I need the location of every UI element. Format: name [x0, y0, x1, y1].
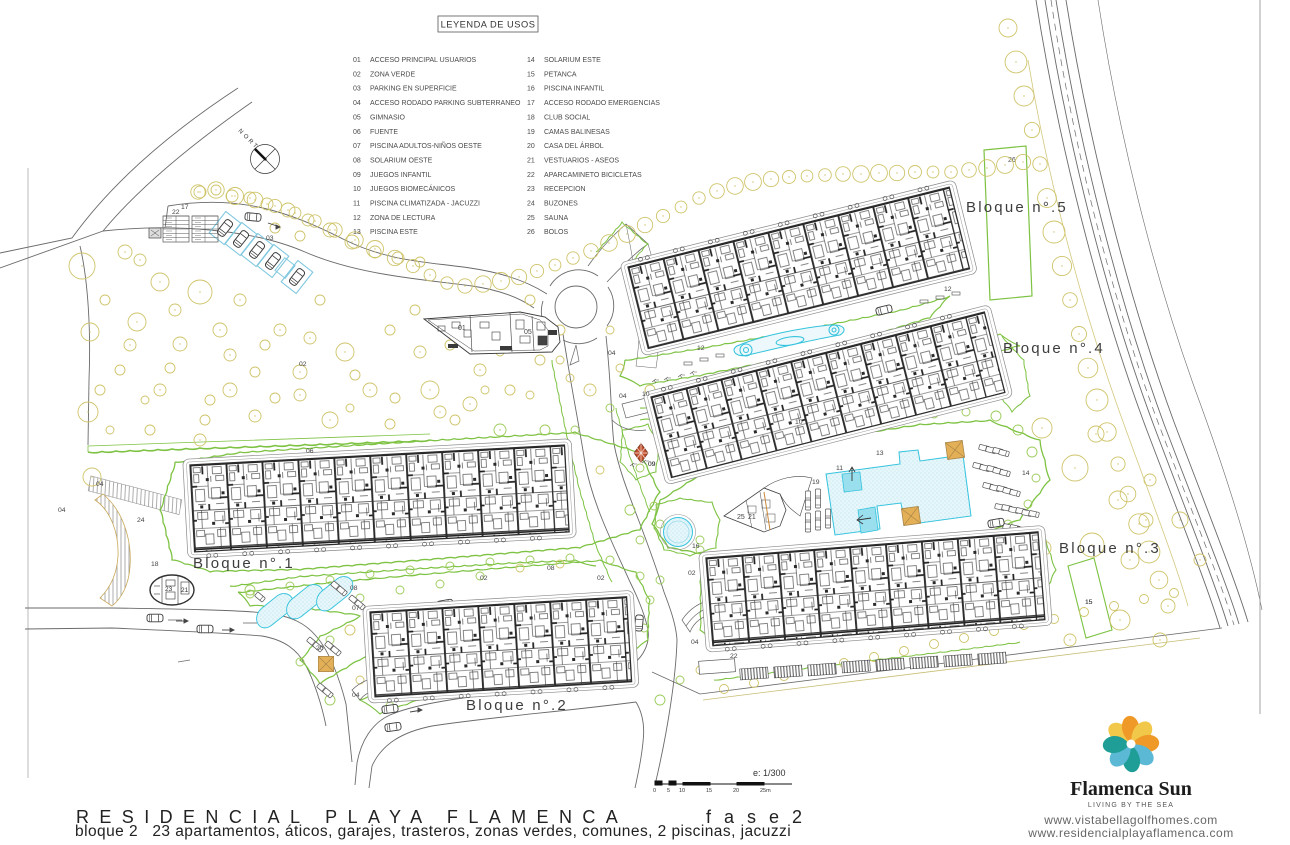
svg-text:21: 21	[527, 157, 535, 164]
svg-text:25: 25	[737, 514, 745, 521]
svg-text:0: 0	[653, 788, 656, 794]
svg-text:20: 20	[733, 788, 739, 794]
svg-text:SOLARIUM OESTE: SOLARIUM OESTE	[370, 157, 433, 164]
svg-text:02: 02	[353, 71, 361, 78]
svg-text:23: 23	[165, 586, 173, 593]
svg-text:21: 21	[748, 514, 756, 521]
svg-text:08: 08	[547, 565, 555, 572]
svg-text:03: 03	[266, 235, 274, 242]
svg-text:06: 06	[353, 129, 361, 136]
svg-text:15: 15	[527, 71, 535, 78]
svg-text:www.residencialplayaflamenca.c: www.residencialplayaflamenca.com	[1027, 826, 1233, 840]
svg-text:09: 09	[648, 461, 656, 468]
svg-text:03: 03	[353, 86, 361, 93]
svg-text:04: 04	[619, 393, 627, 400]
svg-text:04: 04	[353, 100, 361, 107]
svg-text:PARKING EN SUPERFICIE: PARKING EN SUPERFICIE	[370, 86, 457, 93]
svg-text:12: 12	[353, 215, 361, 222]
svg-text:21: 21	[181, 587, 189, 594]
svg-text:e: 1/300: e: 1/300	[753, 768, 786, 778]
svg-text:17: 17	[527, 100, 535, 107]
svg-text:APARCAMINETO BICICLETAS: APARCAMINETO BICICLETAS	[544, 172, 642, 179]
svg-text:20: 20	[316, 645, 324, 652]
svg-text:24: 24	[527, 201, 535, 208]
svg-text:SOLARIUM ESTE: SOLARIUM ESTE	[544, 57, 601, 64]
svg-text:24: 24	[137, 517, 145, 524]
svg-text:02: 02	[597, 575, 605, 582]
svg-text:CLUB SOCIAL: CLUB SOCIAL	[544, 114, 590, 121]
svg-text:RECEPCION: RECEPCION	[544, 186, 586, 193]
svg-text:04: 04	[352, 692, 360, 699]
svg-text:PISCINA INFANTIL: PISCINA INFANTIL	[544, 86, 604, 93]
svg-text:10: 10	[795, 419, 803, 426]
svg-text:LIVING BY THE SEA: LIVING BY THE SEA	[1088, 802, 1174, 809]
svg-text:BUZONES: BUZONES	[544, 201, 578, 208]
svg-text:PISCINA CLIMATIZADA - JACUZZI: PISCINA CLIMATIZADA - JACUZZI	[370, 201, 480, 208]
svg-text:Bloque n°.4: Bloque n°.4	[1003, 340, 1105, 357]
svg-text:05: 05	[353, 114, 361, 121]
svg-text:10: 10	[642, 391, 650, 398]
svg-text:02: 02	[688, 570, 696, 577]
svg-text:13: 13	[876, 450, 884, 457]
svg-text:ZONA DE LECTURA: ZONA DE LECTURA	[370, 215, 436, 222]
svg-text:ZONA VERDE: ZONA VERDE	[370, 71, 415, 78]
svg-text:www.vistabellagolfhomes.com: www.vistabellagolfhomes.com	[1043, 813, 1218, 827]
svg-text:10: 10	[353, 186, 361, 193]
svg-text:04: 04	[691, 639, 699, 646]
svg-text:18: 18	[151, 561, 159, 568]
svg-text:PETANCA: PETANCA	[544, 71, 577, 78]
svg-text:25: 25	[527, 215, 535, 222]
svg-text:19: 19	[527, 129, 535, 136]
svg-text:CASA DEL ÁRBOL: CASA DEL ÁRBOL	[544, 141, 604, 150]
svg-text:Bloque n°.5: Bloque n°.5	[966, 199, 1068, 216]
svg-text:02: 02	[480, 575, 488, 582]
svg-text:22: 22	[730, 653, 738, 660]
svg-text:ACCESO PRINCIPAL USUARIOS: ACCESO PRINCIPAL USUARIOS	[370, 57, 477, 64]
svg-text:23: 23	[527, 186, 535, 193]
svg-text:09: 09	[353, 172, 361, 179]
svg-text:05: 05	[524, 329, 532, 336]
svg-text:19: 19	[812, 479, 820, 486]
svg-text:JUEGOS BIOMECÁNICOS: JUEGOS BIOMECÁNICOS	[370, 184, 456, 193]
svg-text:11: 11	[353, 201, 360, 208]
svg-text:20: 20	[527, 143, 535, 150]
svg-text:08: 08	[353, 157, 361, 164]
svg-text:14: 14	[527, 57, 535, 64]
svg-text:16: 16	[692, 543, 700, 550]
svg-text:BOLOS: BOLOS	[544, 229, 568, 236]
svg-text:15: 15	[706, 788, 712, 794]
svg-text:SAUNA: SAUNA	[544, 215, 568, 222]
svg-text:22: 22	[527, 172, 535, 179]
svg-text:14: 14	[1022, 470, 1030, 477]
svg-text:04: 04	[96, 481, 104, 488]
svg-text:15: 15	[1085, 599, 1093, 606]
svg-text:01: 01	[458, 325, 466, 332]
svg-text:Flamenca Sun: Flamenca Sun	[1070, 778, 1192, 800]
svg-text:GIMNASIO: GIMNASIO	[370, 114, 406, 121]
svg-text:11: 11	[836, 465, 843, 472]
svg-text:12: 12	[944, 286, 952, 293]
svg-text:08: 08	[350, 585, 358, 592]
svg-text:Bloque n°.1: Bloque n°.1	[193, 555, 295, 572]
svg-text:04: 04	[608, 350, 616, 357]
svg-text:ACCESO RODADO EMERGENCIAS: ACCESO RODADO EMERGENCIAS	[544, 100, 660, 107]
svg-text:04: 04	[58, 507, 66, 514]
svg-text:16: 16	[527, 86, 535, 93]
svg-text:LEYENDA DE USOS: LEYENDA DE USOS	[441, 20, 536, 30]
svg-text:Bloque n°.3: Bloque n°.3	[1059, 540, 1161, 557]
svg-text:JUEGOS INFANTIL: JUEGOS INFANTIL	[370, 172, 432, 179]
svg-text:01: 01	[353, 57, 361, 64]
svg-text:CAMAS BALINESAS: CAMAS BALINESAS	[544, 129, 610, 136]
svg-text:18: 18	[527, 114, 535, 121]
svg-text:5: 5	[667, 788, 670, 794]
svg-text:13: 13	[353, 229, 361, 236]
svg-text:ACCESO RODADO PARKING SUBTERRA: ACCESO RODADO PARKING SUBTERRANEO	[370, 100, 521, 107]
svg-text:12: 12	[697, 345, 705, 352]
svg-text:22: 22	[172, 209, 180, 216]
svg-text:06: 06	[306, 448, 314, 455]
svg-text:25m: 25m	[760, 788, 771, 794]
svg-text:07: 07	[353, 143, 361, 150]
svg-text:17: 17	[181, 204, 189, 211]
svg-text:02: 02	[299, 361, 307, 368]
svg-text:bloque 2 23 apartamentos, át: bloque 2 23 apartamentos, áticos, garaje…	[75, 823, 791, 840]
svg-text:PISCINA ADULTOS-NIÑOS OESTE: PISCINA ADULTOS-NIÑOS OESTE	[370, 141, 482, 150]
svg-text:FUENTE: FUENTE	[370, 129, 398, 136]
svg-text:07: 07	[352, 605, 360, 612]
svg-text:10: 10	[679, 788, 685, 794]
svg-text:VESTUARIOS - ASEOS: VESTUARIOS - ASEOS	[544, 157, 619, 164]
svg-text:PISCINA ESTE: PISCINA ESTE	[370, 229, 418, 236]
svg-text:Bloque n°.2: Bloque n°.2	[466, 697, 568, 714]
svg-text:26: 26	[527, 229, 535, 236]
